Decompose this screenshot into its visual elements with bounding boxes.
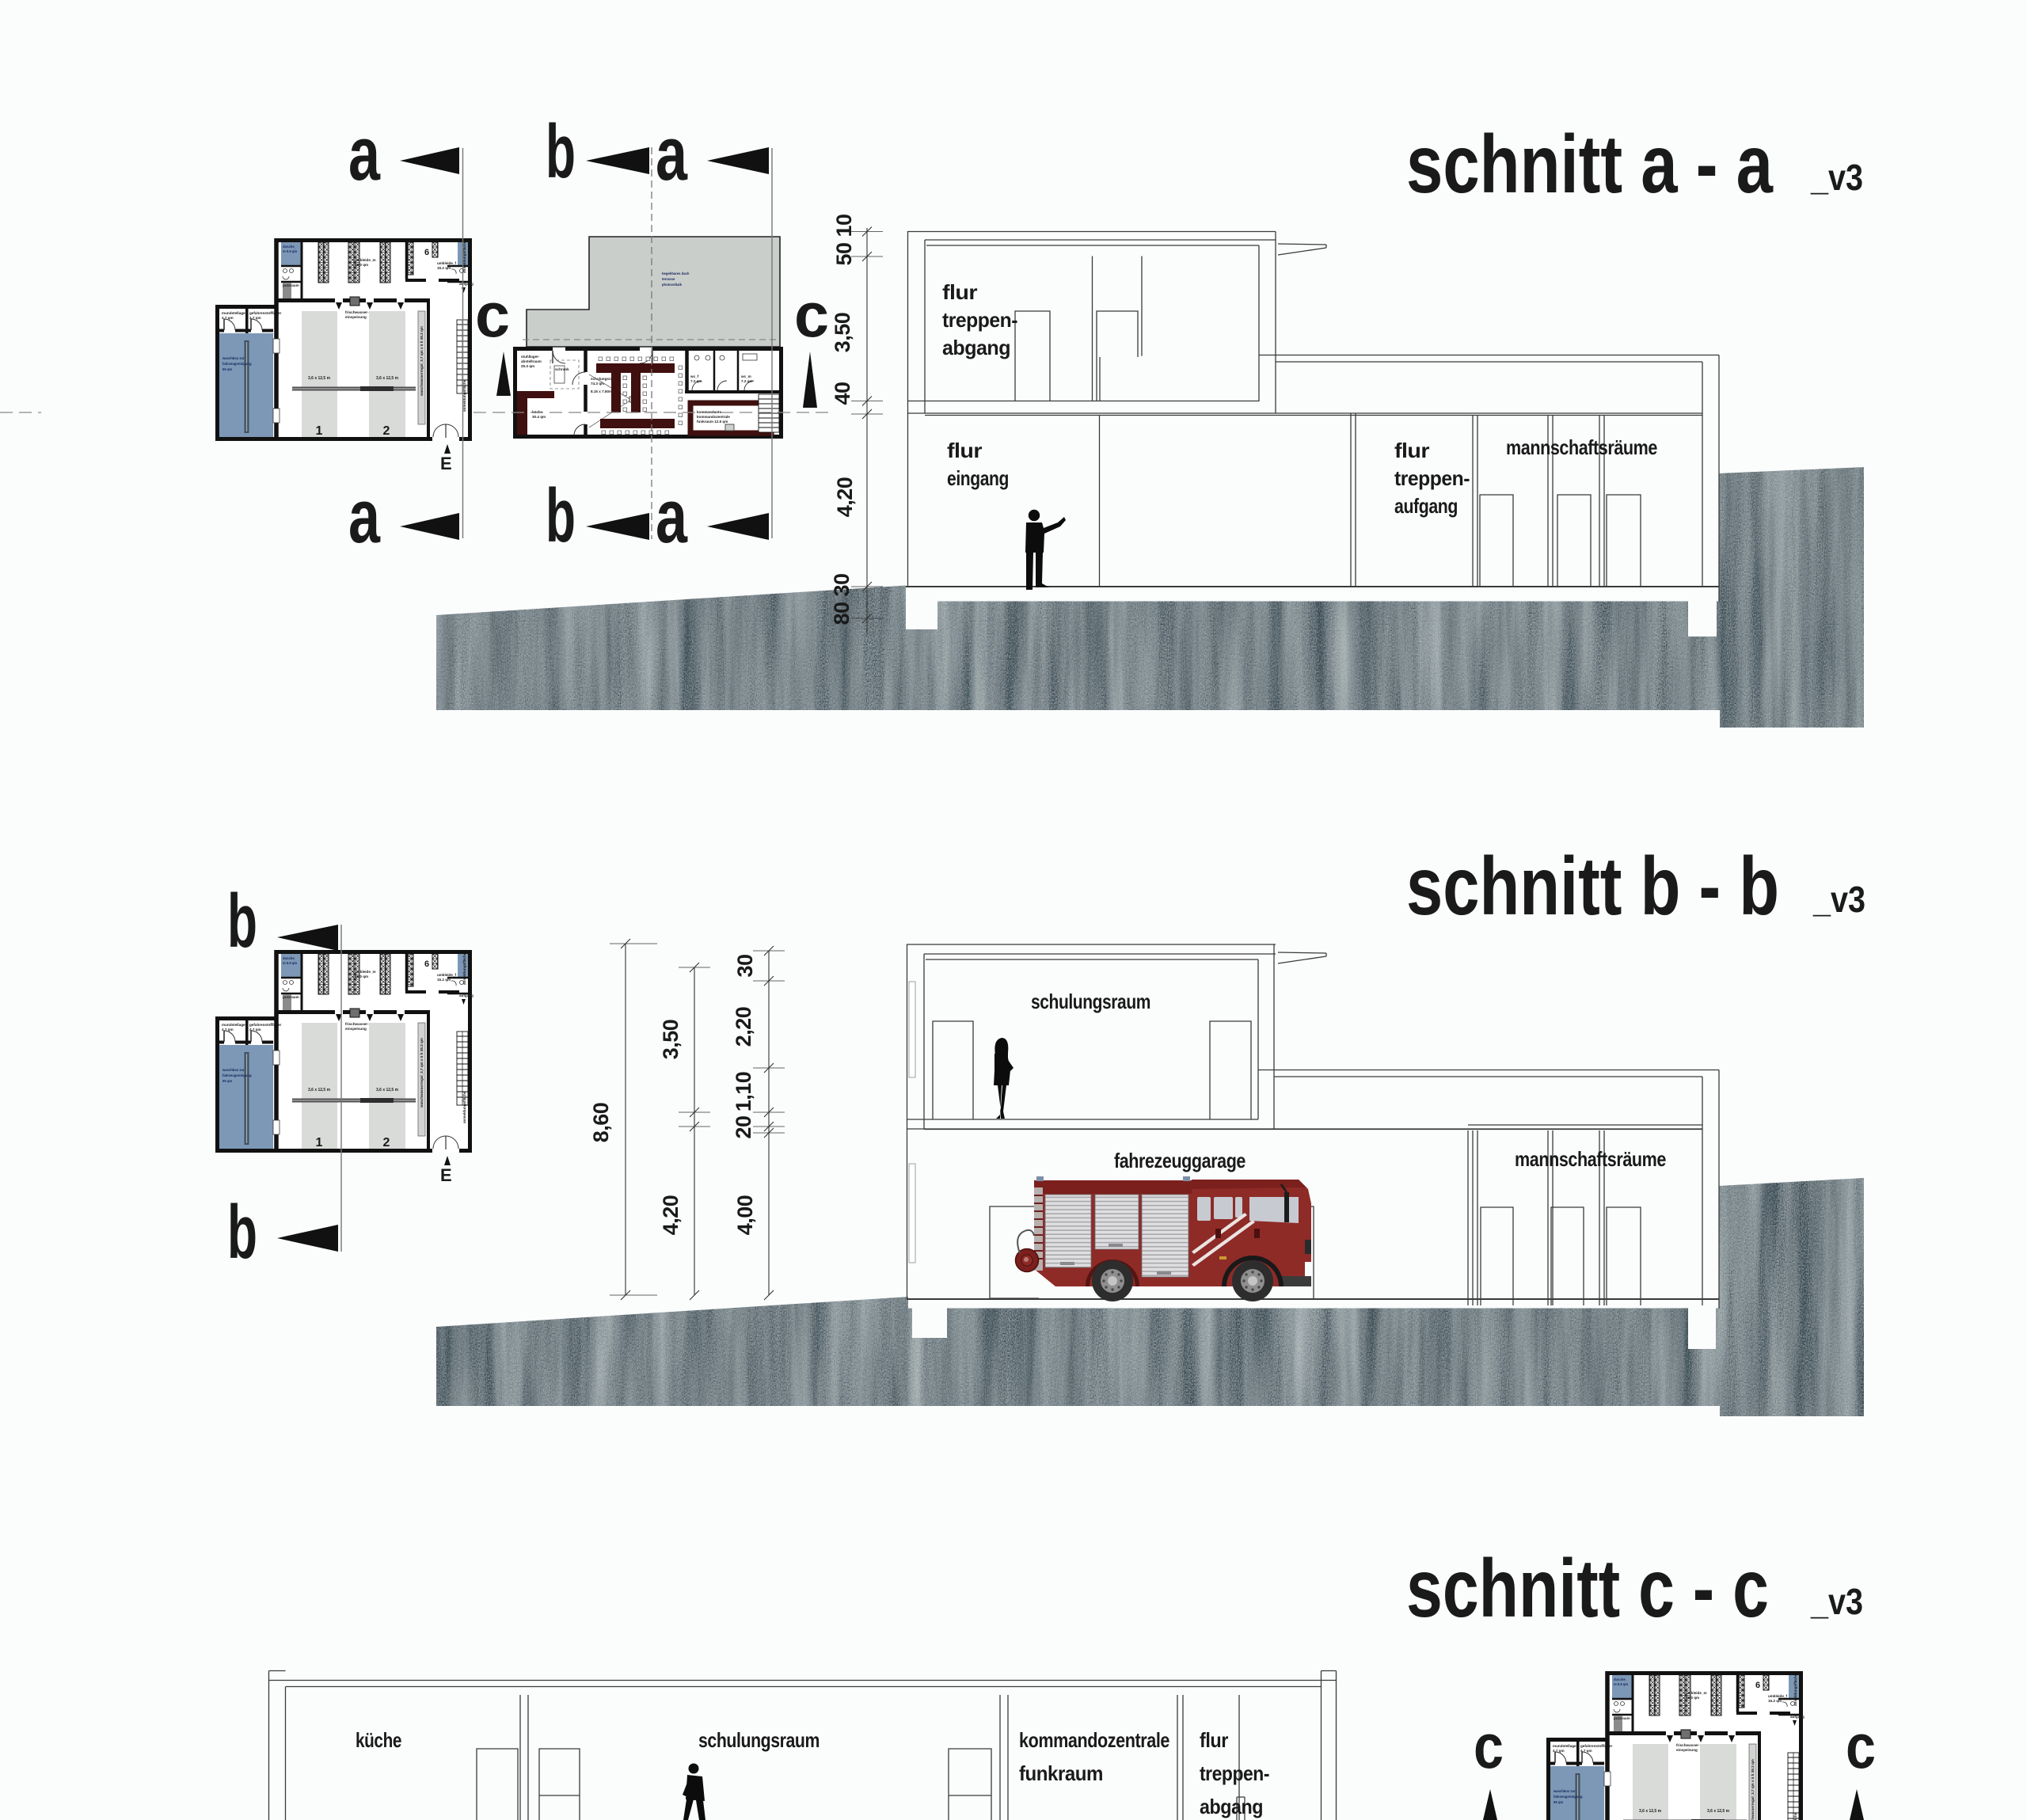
svg-text:treppen-: treppen- xyxy=(1200,1761,1269,1785)
svg-text:mannschaftsräume: mannschaftsräume xyxy=(1506,435,1657,459)
svg-text:schnitt b - b: schnitt b - b xyxy=(1406,841,1779,933)
svg-text:c: c xyxy=(1846,1711,1876,1781)
svg-text:25.3 qm: 25.3 qm xyxy=(521,364,534,368)
svg-text:stuhllager-: stuhllager- xyxy=(521,355,540,359)
svg-text:30.4 qm: 30.4 qm xyxy=(532,415,546,419)
svg-text:funkraum 12.5 qm: funkraum 12.5 qm xyxy=(697,420,728,424)
svg-text:a: a xyxy=(656,474,687,559)
svg-text:4,00: 4,00 xyxy=(733,1195,757,1236)
svg-text:schnitt c - c: schnitt c - c xyxy=(1406,1543,1769,1635)
svg-text:flur: flur xyxy=(947,439,982,462)
svg-text:80 30: 80 30 xyxy=(830,573,854,625)
svg-text:4,20: 4,20 xyxy=(833,477,857,518)
svg-text:abstellraum: abstellraum xyxy=(521,359,542,363)
svg-text:abgang: abgang xyxy=(942,336,1010,359)
svg-text:50 10: 50 10 xyxy=(832,214,856,265)
svg-text:b: b xyxy=(546,473,576,558)
svg-text:aufgang: aufgang xyxy=(1394,494,1458,518)
svg-text:fahrezeuggarage: fahrezeuggarage xyxy=(1114,1149,1245,1172)
svg-text:c: c xyxy=(1474,1711,1504,1781)
svg-text:küche: küche xyxy=(356,1728,401,1752)
svg-text:a: a xyxy=(348,112,380,196)
svg-text:3,50: 3,50 xyxy=(831,313,854,353)
svg-text:flur: flur xyxy=(1200,1728,1228,1752)
svg-text:30: 30 xyxy=(733,954,757,977)
svg-text:begehbares dach: begehbares dach xyxy=(662,272,690,275)
svg-text:1,10: 1,10 xyxy=(732,1072,755,1112)
svg-text:schulungsraum: schulungsraum xyxy=(698,1728,820,1752)
svg-text:4,20: 4,20 xyxy=(659,1195,683,1236)
svg-text:8,60: 8,60 xyxy=(589,1103,613,1143)
svg-text:_v3: _v3 xyxy=(1810,1581,1863,1622)
svg-text:a: a xyxy=(656,112,687,196)
svg-text:c: c xyxy=(475,279,510,350)
svg-text:abgang: abgang xyxy=(1200,1795,1263,1818)
svg-text:treppen-: treppen- xyxy=(1394,466,1470,490)
svg-text:schulungsraum: schulungsraum xyxy=(1031,990,1150,1013)
svg-text:7.2 qm: 7.2 qm xyxy=(690,379,702,383)
svg-text:flur: flur xyxy=(1394,439,1429,462)
svg-text:a: a xyxy=(348,474,380,559)
svg-text:8.15 x 7.50m: 8.15 x 7.50m xyxy=(591,389,612,393)
svg-text:mannschaftsräume: mannschaftsräume xyxy=(1515,1147,1666,1171)
svg-text:7.2 qm: 7.2 qm xyxy=(741,379,753,383)
svg-text:wc_f: wc_f xyxy=(690,374,699,378)
svg-text:schrank: schrank xyxy=(555,367,569,371)
svg-text:flur: flur xyxy=(942,280,977,304)
svg-text:c: c xyxy=(794,279,829,350)
svg-text:b: b xyxy=(227,879,257,963)
svg-text:20: 20 xyxy=(732,1115,755,1138)
svg-text:3,50: 3,50 xyxy=(659,1020,683,1060)
svg-text:eingang: eingang xyxy=(947,466,1009,490)
svg-text:2,20: 2,20 xyxy=(732,1007,755,1047)
svg-text:schnitt a - a: schnitt a - a xyxy=(1406,119,1774,211)
svg-text:b: b xyxy=(546,109,576,194)
svg-text:photovoltaik: photovoltaik xyxy=(662,283,683,287)
svg-text:_v3: _v3 xyxy=(1812,879,1865,920)
svg-text:terrasse: terrasse xyxy=(662,277,675,281)
svg-text:funkraum: funkraum xyxy=(1019,1761,1103,1785)
svg-text:wc_m: wc_m xyxy=(740,374,751,378)
svg-text:_v3: _v3 xyxy=(1810,157,1863,198)
svg-text:kommandozentrale: kommandozentrale xyxy=(697,415,730,419)
svg-text:kommandozentrale: kommandozentrale xyxy=(1019,1728,1169,1752)
svg-text:40: 40 xyxy=(831,382,854,405)
svg-text:treppen-: treppen- xyxy=(942,308,1017,332)
svg-text:b: b xyxy=(227,1190,257,1275)
